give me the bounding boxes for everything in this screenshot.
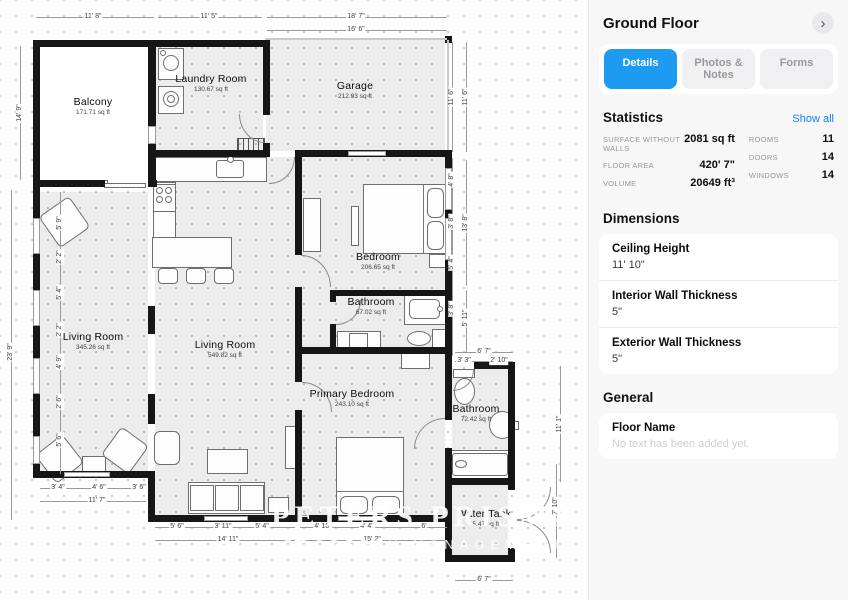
wall [155, 40, 267, 47]
chevron-right-button[interactable]: › [812, 12, 834, 34]
dimension-label: 16' 6" [346, 26, 365, 34]
general-card: Floor Name No text has been added yet. [599, 413, 838, 459]
room-area: 212.93 sq ft [337, 93, 373, 100]
room-name: Garage [337, 80, 373, 92]
dimension-label: 11' 8" [84, 13, 103, 21]
furniture [165, 187, 172, 194]
furniture-line [423, 185, 424, 254]
tab-details[interactable]: Details [604, 49, 677, 89]
dimension-label: 11' 6" [462, 88, 470, 107]
tab-photos-notes[interactable]: Photos & Notes [682, 49, 755, 89]
dimension-label: 3' 11" [214, 523, 233, 531]
furniture [165, 196, 172, 203]
wall [445, 362, 452, 420]
dimension-label: 4' 8" [448, 172, 456, 188]
furniture [401, 353, 430, 369]
room-label: Bathroom67.02 sq ft [347, 296, 394, 316]
window [33, 436, 40, 464]
window [33, 290, 40, 326]
room-label: Laundry Room130.67 sq ft [175, 73, 246, 93]
exterior-wall-thickness-row[interactable]: Exterior Wall Thickness 5" [599, 328, 838, 374]
room-name: Primary Bedroom [310, 388, 395, 400]
floor-title: Ground Floor [603, 15, 699, 32]
dimension-label: 4' 9" [56, 354, 64, 370]
stat-floor-area: FLOOR AREA 420' 7" [603, 159, 735, 171]
furniture [156, 196, 163, 203]
stat-volume: VOLUME 20649 ft³ [603, 177, 735, 189]
furniture [437, 306, 443, 312]
dimension-label: 4' 10" [313, 523, 332, 531]
dimension-label: 23' 9" [7, 342, 15, 361]
wall [295, 347, 302, 382]
show-all-link[interactable]: Show all [792, 113, 834, 125]
panel-header: Ground Floor › [589, 0, 848, 42]
room-label: Balcony171.71 sq ft [74, 96, 113, 116]
dimensions-card: Ceiling Height 11' 10" Interior Wall Thi… [599, 234, 838, 374]
furniture [215, 485, 239, 511]
window [33, 218, 40, 254]
dimension-label: 6' [420, 523, 427, 531]
room-area: 67.02 sq ft [347, 309, 394, 316]
dimension-label: 4' 6" [91, 484, 107, 492]
wall [295, 410, 302, 522]
ceiling-height-row[interactable]: Ceiling Height 11' 10" [599, 234, 838, 281]
door-arc [517, 520, 551, 553]
window [348, 151, 386, 156]
room-area: 171.71 sq ft [74, 109, 113, 116]
statistics-title: Statistics [603, 110, 663, 125]
dimension-label: 18' 7" [346, 13, 365, 21]
room-name: Balcony [74, 96, 113, 108]
wall [445, 478, 452, 562]
room-name: Water Tank [457, 508, 512, 520]
door-arc [517, 487, 551, 520]
wall [445, 362, 452, 369]
dimension-label: 5' 4" [448, 255, 456, 271]
dimension-label: 3' 3" [456, 357, 472, 365]
furniture [167, 95, 175, 103]
dimension-label: 4' 4" [359, 523, 375, 531]
furniture [214, 268, 234, 284]
furniture [407, 331, 431, 346]
dimension-label: 3' 8" [448, 214, 456, 230]
dimension-label: 13' 8" [462, 213, 470, 232]
dimension-label: 15' 2" [362, 536, 381, 544]
window [148, 126, 156, 144]
app-window: PETERS PRISMA PROPERTY MANAGEMENT 11' 8"… [0, 0, 848, 600]
furniture [240, 485, 264, 511]
room-name: Living Room [63, 331, 124, 343]
dimension-label: 5' 4" [56, 285, 64, 301]
dimension-label: 5' 4" [254, 523, 270, 531]
furniture [152, 237, 232, 268]
wall [148, 394, 155, 424]
dimension-label: 2' 6" [56, 394, 64, 410]
dimension-label: 7' 10" [552, 496, 560, 515]
opening-line [265, 38, 447, 40]
room-name: Bathroom [452, 403, 499, 415]
floor-name-field[interactable]: Floor Name No text has been added yet. [599, 413, 838, 459]
wall [508, 455, 515, 483]
furniture [207, 449, 248, 474]
furniture [154, 431, 180, 465]
wall [508, 362, 515, 462]
window [204, 516, 248, 521]
furniture [163, 55, 179, 71]
interior-wall-thickness-row[interactable]: Interior Wall Thickness 5" [599, 281, 838, 328]
furniture [156, 187, 163, 194]
statistics-grid: SURFACE WITHOUT WALLS 2081 sq ft FLOOR A… [603, 133, 834, 195]
room-label: Living Room345.26 sq ft [63, 331, 124, 351]
room-area: 130.67 sq ft [175, 86, 246, 93]
wall [508, 548, 515, 562]
furniture [372, 496, 400, 514]
dimension-label: 11' 5" [200, 13, 219, 21]
furniture [227, 156, 234, 163]
furniture [351, 206, 359, 246]
room-label: Living Room549.82 sq ft [195, 339, 256, 359]
wall [148, 47, 156, 180]
furniture [104, 183, 146, 188]
dimension-label: 2' 2" [56, 249, 64, 265]
floor-info-panel: Ground Floor › Details Photos & Notes Fo… [588, 0, 848, 600]
room-area: 72.42 sq ft [452, 416, 499, 423]
window [33, 358, 40, 394]
furniture [409, 299, 440, 319]
room-area: 243.10 sq ft [310, 401, 395, 408]
dimension-label: 6' 7" [476, 348, 492, 356]
tab-forms[interactable]: Forms [760, 49, 833, 89]
dimensions-header: Dimensions [603, 211, 834, 226]
dimension-label: 5' 11" [462, 309, 470, 328]
furniture-line [337, 491, 404, 492]
dimension-label: 3' 6" [131, 484, 147, 492]
room-name: Bathroom [347, 296, 394, 308]
room-area: 206.65 sq ft [356, 264, 400, 271]
dimension-label: 11' 7" [88, 497, 107, 505]
wall [445, 555, 515, 562]
wall [263, 40, 270, 115]
room-area: 55.47 sq ft [457, 521, 512, 528]
room-name: Bedroom [356, 251, 400, 263]
wall [33, 40, 40, 187]
furniture [303, 198, 321, 252]
wall [148, 180, 157, 187]
room-area: 345.26 sq ft [63, 344, 124, 351]
furniture [153, 157, 267, 182]
stat-rooms: ROOMS 11 [749, 133, 834, 145]
furniture [158, 268, 178, 284]
dimension-label: 5' 9" [56, 215, 64, 231]
room-label: Primary Bedroom243.10 sq ft [310, 388, 395, 408]
dimension-label: 5' 6" [56, 432, 64, 448]
wall [445, 478, 515, 485]
furniture [190, 485, 214, 511]
wall [295, 287, 302, 353]
room-label: Water Tank55.47 sq ft [457, 508, 512, 528]
furniture [432, 329, 446, 348]
stat-windows: WINDOWS 14 [749, 169, 834, 181]
general-header: General [603, 390, 834, 405]
tab-bar: Details Photos & Notes Forms [599, 44, 838, 94]
wall [295, 150, 302, 255]
room-label: Garage212.93 sq ft [337, 80, 373, 100]
furniture [427, 221, 444, 250]
dimension-label: 14' 9" [16, 103, 24, 122]
dimension-label: 6' 7" [476, 576, 492, 584]
window [338, 516, 382, 521]
room-name: Living Room [195, 339, 256, 351]
furniture [186, 268, 206, 284]
wall [33, 40, 157, 47]
window [64, 472, 110, 477]
wall [295, 347, 447, 354]
dimension-label: 3' 4" [50, 484, 66, 492]
wall [148, 306, 155, 334]
statistics-header: Statistics Show all [603, 110, 834, 125]
floor-plan-canvas[interactable]: PETERS PRISMA PROPERTY MANAGEMENT 11' 8"… [0, 0, 588, 600]
dimension-label: 2' 10" [489, 357, 508, 365]
furniture [427, 188, 444, 218]
furniture [455, 460, 467, 468]
stat-surface: SURFACE WITHOUT WALLS 2081 sq ft [603, 133, 735, 153]
dimension-label: 14' 11" [217, 536, 240, 544]
room-label: Bathroom72.42 sq ft [452, 403, 499, 423]
room-label: Bedroom206.65 sq ft [356, 251, 400, 271]
dimensions-title: Dimensions [603, 211, 680, 226]
dimension-label: 11' 1" [556, 415, 564, 434]
furniture [268, 497, 289, 513]
general-title: General [603, 390, 653, 405]
room-name: Laundry Room [175, 73, 246, 85]
floor-name-placeholder: No text has been added yet. [612, 438, 825, 450]
dimension-label: 5' 6" [169, 523, 185, 531]
furniture [160, 50, 166, 56]
chevron-right-icon: › [821, 16, 826, 31]
wall [33, 180, 105, 187]
room-area: 549.82 sq ft [195, 352, 256, 359]
wall [150, 150, 269, 157]
stat-doors: DOORS 14 [749, 151, 834, 163]
dimension-label: 3' 8" [448, 301, 456, 317]
furniture [340, 496, 368, 514]
dimension-label: 11' 6" [448, 88, 456, 107]
